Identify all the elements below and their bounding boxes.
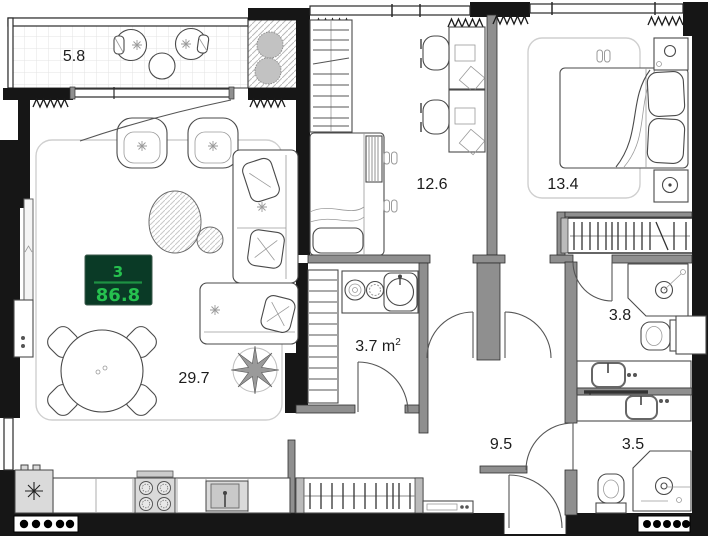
- door-swing: [505, 312, 551, 358]
- window: [530, 4, 683, 13]
- window: [310, 6, 470, 15]
- burner: [140, 498, 153, 511]
- burner: [140, 482, 153, 495]
- rug: [149, 191, 223, 253]
- pillow: [647, 71, 685, 117]
- slippers-icon: [384, 152, 397, 164]
- area-badge: 3 86.8: [85, 255, 152, 306]
- nightstand: [654, 38, 688, 70]
- balcony-railing: [8, 18, 248, 26]
- slippers-icon: [597, 50, 610, 62]
- kitchen: [15, 465, 290, 513]
- burner: [158, 482, 171, 495]
- badge-rooms-count: 3: [113, 263, 123, 281]
- nightstand: [654, 170, 688, 202]
- room-label-bathroom-guest: 3.5: [622, 436, 644, 453]
- cabinet: [14, 300, 33, 357]
- bathroom-guest-room: [596, 451, 691, 513]
- living-room: [36, 100, 298, 420]
- plant-icon: [255, 58, 281, 84]
- vent-marker: [638, 516, 690, 532]
- door-swing: [427, 312, 473, 358]
- room-label-hallway: 9.5: [490, 436, 512, 453]
- vent-marker: [14, 516, 78, 532]
- ladder-rack: [308, 270, 338, 403]
- shower: [628, 264, 688, 316]
- hood: [137, 471, 173, 477]
- room-label-balcony: 5.8: [63, 48, 85, 65]
- washbasin-counter: [577, 361, 691, 388]
- entry-opening: [504, 513, 566, 534]
- kitchen-sink: [206, 481, 248, 511]
- planter-panel: [248, 20, 300, 88]
- pillow: [313, 228, 363, 253]
- washbasin: [384, 273, 417, 311]
- window: [4, 418, 13, 470]
- room-label-bedroom: 13.4: [547, 176, 578, 193]
- bed-double: [560, 68, 688, 168]
- burner: [158, 498, 171, 511]
- compass-star-icon: [231, 346, 279, 394]
- bed-single: [310, 133, 384, 255]
- hall-wardrobe: [296, 478, 423, 513]
- duct-shaft: [676, 316, 706, 354]
- room-label-bathroom-small: 3.7 m2: [355, 337, 401, 355]
- room-label-bathroom-master: 3.8: [609, 307, 631, 324]
- wardrobe-hangers: [561, 218, 692, 253]
- balcony-table: [149, 53, 175, 79]
- door-swing: [358, 362, 408, 412]
- pillow: [647, 118, 685, 164]
- shower: [633, 451, 691, 511]
- room-label-living: 29.7: [178, 370, 209, 387]
- door-swing: [526, 423, 573, 470]
- stove: [135, 471, 175, 513]
- armchair: [188, 118, 238, 168]
- room-label-office: 12.6: [416, 176, 447, 193]
- floor-plan: 5.8 29.7 12.6 13.4 3.7 m2 3.8 9.5 3.5 3 …: [0, 0, 708, 536]
- fridge: [15, 465, 53, 513]
- shoe-bench: [423, 501, 473, 513]
- dining-table: [44, 323, 160, 419]
- washbasin-counter: [577, 395, 691, 421]
- office-chair: [421, 100, 449, 134]
- glass-wall: [72, 89, 233, 97]
- desk: [449, 27, 485, 92]
- pillow: [247, 229, 286, 269]
- door-swing: [573, 262, 612, 301]
- armchair: [117, 118, 167, 168]
- badge-total-area: 86.8: [96, 285, 140, 306]
- office-room: [310, 20, 485, 255]
- toilet: [596, 474, 626, 513]
- plant-icon: [257, 32, 283, 58]
- slippers-icon: [384, 200, 397, 212]
- office-chair: [421, 36, 449, 70]
- shelving-closet: [310, 20, 352, 132]
- tv-panel: [24, 199, 33, 317]
- balcony: [8, 18, 248, 88]
- desk: [449, 90, 485, 155]
